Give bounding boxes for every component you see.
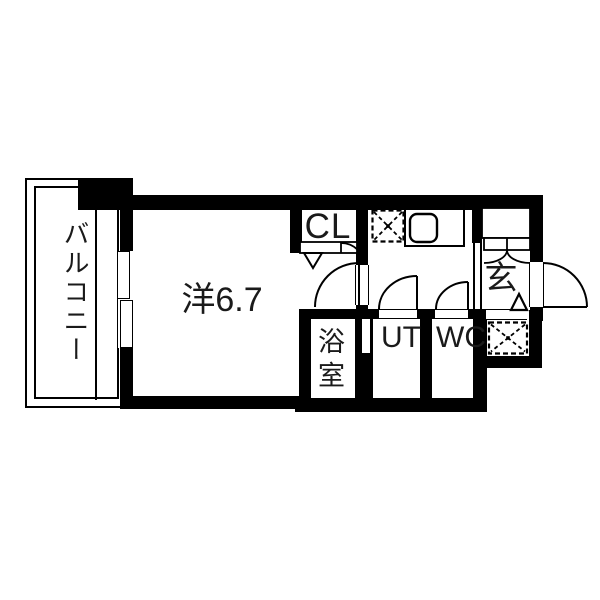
utility-door-swing <box>379 276 417 309</box>
label-entrance: 玄 <box>477 261 525 294</box>
appliance-space-entrance <box>489 323 527 354</box>
shoe-cabinet <box>482 208 530 238</box>
closet-fold-triangle <box>304 253 322 268</box>
entrance-door-swing <box>543 263 587 307</box>
label-toilet: WC <box>436 322 469 353</box>
floorplan: バルコニー 洋6.7 CL 玄 浴室 UT WC <box>0 0 600 600</box>
toilet-door-swing <box>436 282 468 309</box>
label-main-room: 洋6.7 <box>148 283 296 319</box>
appliance-space-kitchen <box>373 211 404 242</box>
main-room-door-swing <box>315 263 359 307</box>
label-utility: UT <box>381 322 414 353</box>
kitchen-sink <box>410 214 437 242</box>
label-bathroom: 浴室 <box>317 327 349 399</box>
label-balcony: バルコニー <box>56 220 94 380</box>
label-closet: CL <box>299 209 357 244</box>
entrance-step-triangle <box>511 294 527 310</box>
